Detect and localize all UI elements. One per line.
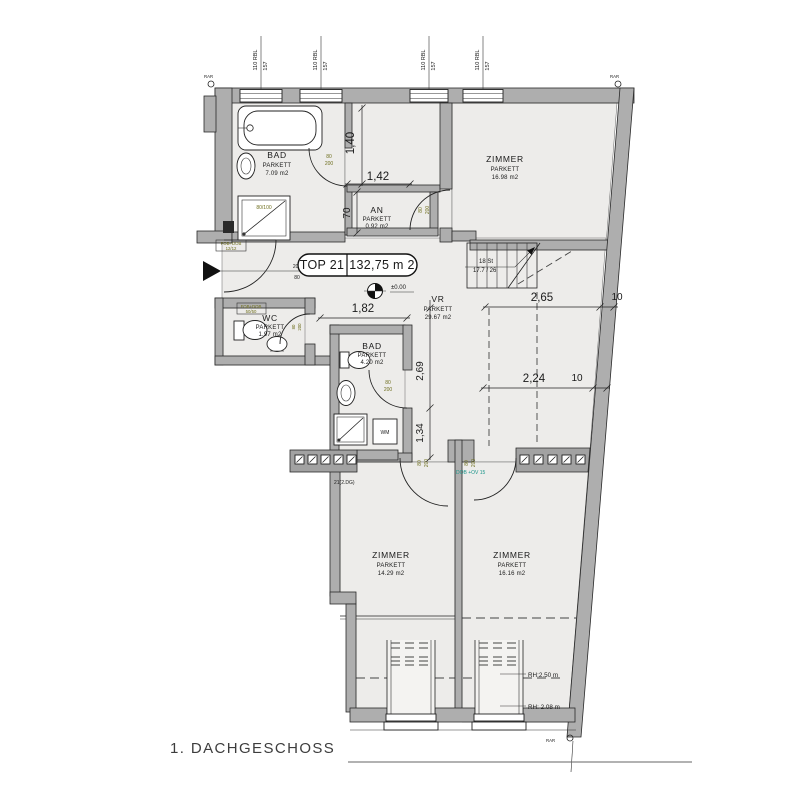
corner-mark-label: RAR (546, 738, 555, 743)
svg-text:50/50: 50/50 (246, 309, 257, 314)
wall-corridor-right-b (440, 228, 452, 242)
door-height-label: 200 (471, 459, 477, 468)
roof-height-1: RH:2.50 m (528, 672, 558, 679)
window-marker-3: 110 RBL 157 (421, 36, 437, 89)
hatch-band-left (290, 450, 357, 472)
shower-icon (238, 196, 290, 240)
svg-text:7.09 m2: 7.09 m2 (265, 171, 289, 177)
door-width-label: 80 (291, 324, 296, 329)
room-label-zimmer2: ZIMMER PARKETT 14.29 m2 (372, 550, 410, 577)
svg-text:10: 10 (611, 292, 623, 303)
svg-text:1,34: 1,34 (415, 423, 426, 443)
door-width-label: 80 (417, 460, 423, 466)
wall-bad2-top (330, 325, 405, 334)
wall-bottom-a (350, 708, 387, 722)
dormer-window-2 (472, 640, 526, 730)
wall-zimmer1-bottom-step (452, 231, 476, 241)
door-width-label: 80 (418, 207, 424, 213)
roof-height-2: RH: 2.08 m (528, 704, 560, 711)
bathtub-icon (238, 106, 322, 150)
svg-text:1,40: 1,40 (345, 132, 357, 154)
shower-icon (334, 414, 367, 445)
floorplan-page: 110 RBL 157 110 RBL 157 110 RBL 157 110 … (0, 0, 800, 800)
stair-step-count: 18 St (479, 259, 493, 265)
wall-wc-right-b (305, 344, 315, 365)
svg-text:WC: WC (262, 313, 278, 323)
hatch-band-right (516, 448, 590, 472)
svg-text:ZIMMER: ZIMMER (372, 550, 410, 560)
wall-wc-bottom (215, 356, 337, 365)
svg-text:ZIMMER: ZIMMER (486, 154, 524, 164)
unit-area: 132,75 m 2 (349, 258, 415, 272)
svg-text:16.16 m2: 16.16 m2 (499, 571, 526, 577)
floorplan-drawing: 110 RBL 157 110 RBL 157 110 RBL 157 110 … (0, 0, 800, 800)
door-width-label: 80 (326, 154, 332, 160)
washing-machine-icon: WM (373, 419, 397, 444)
svg-text:BAD: BAD (362, 341, 382, 351)
svg-text:PARKETT: PARKETT (498, 563, 527, 569)
window-tag-height: 157 (431, 61, 437, 70)
svg-text:0.92 m2: 0.92 m2 (365, 224, 389, 230)
window-tag-height: 157 (263, 61, 269, 70)
svg-text:AN: AN (370, 205, 383, 215)
svg-text:12/12: 12/12 (226, 246, 237, 251)
window-markers: 110 RBL 157 110 RBL 157 110 RBL 157 110 … (253, 36, 491, 89)
window-tag-size: 110 RBL (475, 50, 481, 71)
page-title: 1. DACHGESCHOSS (170, 740, 335, 757)
window-tag-size: 110 RBL (313, 50, 319, 71)
svg-text:2,65: 2,65 (531, 292, 553, 304)
svg-text:PARKETT: PARKETT (256, 325, 285, 331)
svg-text:ZIMMER: ZIMMER (493, 550, 531, 560)
svg-text:PARKETT: PARKETT (358, 353, 387, 359)
window-4 (463, 90, 503, 103)
door-height-label: 200 (425, 206, 431, 215)
window-1 (240, 90, 282, 103)
wall-wc-right-a (305, 298, 315, 314)
wall-wc-left (215, 298, 223, 365)
window-tag-height: 157 (323, 61, 329, 70)
wall-left-step (330, 592, 356, 604)
wall-an-bottom (347, 228, 438, 236)
stair-ratio: 17.7 / 26 (473, 268, 497, 274)
window-marker-2: 110 RBL 157 (313, 36, 329, 89)
wall-left-upper (215, 88, 232, 240)
svg-text:PARKETT: PARKETT (363, 217, 392, 223)
svg-text:BAD: BAD (267, 150, 287, 160)
door-height-label: 200 (325, 161, 334, 167)
svg-text:PARKETT: PARKETT (263, 163, 292, 169)
svg-text:2,24: 2,24 (523, 373, 546, 385)
entry-arrow-icon (203, 261, 221, 281)
svg-text:1,82: 1,82 (352, 303, 374, 315)
unit-badge: TOP 21 132,75 m 2 (298, 254, 417, 276)
svg-text:PARKETT: PARKETT (491, 167, 520, 173)
drawing-title-block: 1. DACHGESCHOSS (170, 740, 692, 762)
svg-text:2,69: 2,69 (415, 361, 426, 381)
dormer-window-1 (384, 640, 438, 730)
washing-machine-label: WM (381, 430, 390, 436)
wall-left-jog (204, 96, 216, 132)
room-label-zimmer1: ZIMMER PARKETT 16.98 m2 (486, 154, 524, 181)
door-height-label: 200 (424, 459, 430, 468)
svg-text:10: 10 (571, 373, 583, 384)
sink-icon (237, 153, 255, 179)
floor-ref-label: 21(2.DG) (334, 480, 355, 486)
wall-zimmer2-door-jamb (357, 450, 398, 460)
door-height-label: 200 (384, 387, 393, 393)
svg-text:16.98 m2: 16.98 m2 (492, 175, 519, 181)
corner-mark-icon (208, 81, 214, 87)
corner-mark-icon (615, 81, 621, 87)
sink-icon (337, 381, 355, 406)
room-zimmer1-floor (452, 103, 617, 245)
window-tag-size: 110 RBL (421, 50, 427, 71)
corner-mark-label: RAR (610, 74, 619, 79)
wall-room-partition (455, 440, 462, 720)
svg-text:1,42: 1,42 (367, 171, 389, 183)
window-3 (410, 90, 448, 103)
window-marker-4: 110 RBL 157 (475, 36, 491, 89)
wall-an-top (347, 185, 440, 192)
window-tag-size: 110 RBL (253, 50, 259, 71)
wall-bad2-right-a (403, 325, 412, 370)
door-width-label: 80 (385, 380, 391, 386)
entry-door-size-bottom: 80 (294, 275, 300, 281)
door-height-label: 200 (297, 323, 302, 331)
level-value: ±0.00 (391, 285, 407, 291)
corner-mark-label: RAR (204, 74, 213, 79)
wall-left-lower-b (346, 604, 356, 712)
window-2 (300, 90, 342, 103)
svg-text:29.67 m2: 29.67 m2 (425, 315, 452, 321)
svg-text:PARKETT: PARKETT (377, 563, 406, 569)
svg-text:14.29 m2: 14.29 m2 (378, 571, 405, 577)
svg-text:PARKETT: PARKETT (424, 307, 453, 313)
corner-sink-icon (267, 337, 287, 352)
room-fills (222, 102, 617, 722)
svg-text:VR: VR (431, 294, 444, 304)
wall-bottom-b (435, 708, 475, 722)
duct-icon (223, 221, 234, 233)
window-marker-1: 110 RBL 157 (253, 36, 269, 89)
window-tag-height: 157 (485, 61, 491, 70)
room-label-zimmer3: ZIMMER PARKETT 16.16 m2 (493, 550, 531, 577)
wall-corridor-right-a (440, 103, 452, 189)
door-width-label: 80 (464, 460, 470, 466)
svg-text:1.97 m2: 1.97 m2 (258, 332, 282, 338)
svg-text:4.20 m2: 4.20 m2 (360, 360, 384, 366)
unit-number: TOP 21 (300, 258, 344, 272)
beam-note: DOB +OV 15 (456, 470, 486, 476)
svg-text:70: 70 (342, 207, 353, 219)
shower-size-label: 80/100 (256, 205, 272, 211)
